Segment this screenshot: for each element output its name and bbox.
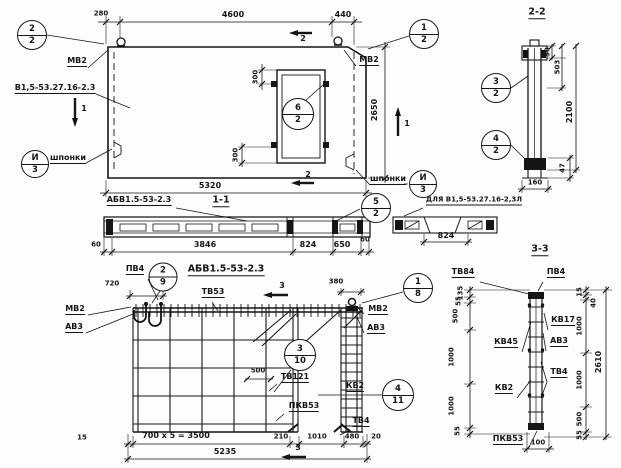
- drawing-linework: [0, 0, 621, 468]
- s33-dim-right-4: 1000: [577, 370, 584, 389]
- elev-dim-edge-left: 15: [77, 435, 87, 442]
- callout-bubble: И 3: [409, 170, 437, 198]
- loop-stems: [117, 45, 342, 46]
- s33-dim-bottom: 100: [531, 440, 546, 447]
- lifting-loop-icon: [117, 38, 125, 46]
- plan-dim-bottom: 5320: [199, 182, 221, 190]
- plan-dim-door-top: 300: [253, 70, 260, 85]
- s22-dim-upper: 503: [555, 60, 562, 75]
- variant-detail-view: [393, 208, 497, 246]
- dim-ticks: [103, 19, 388, 196]
- callout-sheet: 3: [22, 165, 48, 176]
- s33-dim-total: 2610: [595, 351, 603, 373]
- plan-dim-edge: 280: [94, 11, 109, 18]
- s33-dim-left-5: 1000: [449, 396, 456, 415]
- section-1-arrow-icon: [395, 107, 401, 116]
- elev-dim-jamb: 480: [345, 434, 360, 441]
- s33-label-kv45: КВ45: [494, 338, 518, 348]
- elev-dim-opening: 1010: [307, 434, 326, 441]
- callout-bubble: 6 2: [282, 98, 314, 130]
- s33-label-tv84: ТВ84: [452, 268, 475, 278]
- section-1-1-title: 1-1: [212, 195, 229, 207]
- elev-label-tv53: ТВ53: [202, 288, 225, 298]
- top-tab: [530, 40, 539, 46]
- section-3-3-title: 3-3: [531, 244, 548, 256]
- s11-dim-edge-left: 60: [91, 242, 101, 249]
- plan-section2-mark-bottom: 2: [305, 171, 311, 179]
- callout-number: 4: [383, 384, 413, 396]
- callout-sheet: 3: [410, 185, 436, 196]
- core-slots: [120, 224, 355, 231]
- section-2-arrow-icon: [291, 180, 300, 186]
- callout-number: 1: [404, 277, 432, 289]
- section-2-2-title: 2-2: [528, 7, 545, 19]
- s11-mesh-mark: АБВ1.5-53-2.3: [107, 196, 172, 206]
- callout-number: 3: [285, 344, 315, 356]
- plan-leader-lines: [47, 35, 409, 185]
- callout-number: 2: [18, 24, 46, 36]
- elev-dim-gap: 210: [274, 434, 289, 441]
- s33-label-pv4: ПВ4: [547, 268, 565, 278]
- s33-dim-right-3: 1000: [577, 316, 584, 335]
- elev-dim-jamb-top: 380: [329, 279, 344, 286]
- plan-panel-mark: В1,5-53.27.16-2.3: [15, 84, 96, 94]
- callout-number: 4: [482, 134, 510, 146]
- elev-dim-inner: 500: [251, 368, 266, 375]
- callout-number: 3: [482, 77, 510, 89]
- plan-section1-mark-right: 1: [404, 120, 410, 128]
- s33-label-pkv53: ПКВ53: [493, 435, 523, 445]
- s11-dim-opening: 824: [300, 241, 317, 249]
- callout-bubble: 4 11: [382, 379, 414, 411]
- s33-dim-right-1: 15: [577, 287, 584, 297]
- plan-label-keys-left: шпонки: [50, 154, 86, 164]
- section-2-arrow-icon: [289, 30, 298, 36]
- leaders: [511, 76, 528, 160]
- callout-sheet: 9: [150, 278, 177, 289]
- plan-label-mv2-left: МВ2: [67, 57, 87, 67]
- callout-number: 2: [150, 266, 177, 278]
- s11-dim-body: 3846: [194, 241, 216, 249]
- plan-section1-mark-left: 1: [81, 105, 87, 113]
- callout-sheet: 8: [404, 289, 432, 300]
- toe-lines: [522, 170, 548, 178]
- callout-bubble: 3 2: [481, 73, 511, 103]
- elev-label-mv2-left: МВ2: [65, 305, 85, 315]
- elev-label-pkv53: ПКВ53: [289, 402, 319, 412]
- elevation-title: АБВ1.5-53-2.3: [188, 264, 265, 276]
- callout-sheet: 2: [283, 115, 313, 126]
- detail-dim: 824: [438, 232, 455, 240]
- elev-label-av3-right: АВ3: [367, 324, 385, 334]
- elev-dim-field: 700 x 5 = 3500: [142, 432, 210, 440]
- plan-dim-top-right: 440: [335, 11, 352, 19]
- s33-dim-left-6: 55: [455, 426, 462, 436]
- s22-dim-toe: 47: [560, 163, 567, 173]
- section-1-arrow-icon: [72, 118, 78, 127]
- elev-label-mv2-right: МВ2: [368, 305, 388, 315]
- callout-sheet: 2: [482, 89, 510, 100]
- elev-section3-mark-top: 3: [279, 282, 285, 290]
- callout-bubble: 2 9: [149, 263, 178, 292]
- end-fills: [106, 219, 363, 235]
- callout-number: И: [22, 153, 48, 165]
- plan-label-mv2-right: МВ2: [359, 56, 379, 66]
- callout-bubble: 2 2: [17, 20, 47, 50]
- field-horizontal-bars: [133, 340, 293, 424]
- s33-label-kv17: КВ17: [551, 316, 575, 326]
- callout-bubble: 3 10: [284, 339, 316, 371]
- elev-label-kv2: КВ2: [346, 382, 364, 392]
- leaders: [404, 208, 423, 216]
- plan-dim-height: 2650: [371, 99, 379, 121]
- plan-dim-door-bottom: 300: [233, 148, 240, 163]
- callout-bubble: 1 2: [409, 19, 439, 49]
- detail-label: ДЛЯ В1,5-53.27.16-2,3Л: [426, 197, 522, 206]
- plan-dimension-lines: [98, 16, 390, 197]
- elev-label-av3-left: АВ3: [65, 323, 83, 333]
- engineering-drawing-sheet: 280 4600 440 МВ2 В1,5-53.27.16-2.3 МВ2 2…: [0, 0, 621, 468]
- slab-outline: [104, 217, 370, 237]
- elev-dim-edge-right: 20: [371, 434, 381, 441]
- elev-label-tv121: ТВ121: [281, 373, 309, 383]
- s22-dim-top: 50: [545, 47, 552, 57]
- s11-dim-right: 650: [334, 241, 351, 249]
- elev-dim-total: 5235: [214, 448, 236, 456]
- callout-bubble: 4 2: [481, 130, 511, 160]
- bar-dot: [144, 302, 148, 306]
- joint-lines: [287, 217, 362, 237]
- extension-lines: [104, 238, 369, 256]
- callout-sheet: 2: [410, 35, 438, 46]
- s33-label-tv4: ТВ4: [550, 368, 567, 378]
- s33-label-av3: АВ3: [550, 337, 568, 347]
- s33-dim-left-3: 500: [453, 309, 460, 324]
- s11-dim-edge-right: 60: [360, 237, 370, 244]
- bar-dot: [159, 302, 163, 306]
- s33-label-kv2: КВ2: [495, 384, 513, 394]
- callout-number: 1: [410, 23, 438, 35]
- plan-dim-top: 4600: [222, 11, 244, 19]
- s33-dim-left-2: 55: [456, 296, 463, 306]
- plan-label-keys-right: шпонки: [370, 175, 406, 185]
- s33-dim-right-6: 55: [577, 430, 584, 440]
- callout-bubble: 5 2: [361, 193, 391, 223]
- elev-section3-mark-bottom: 3: [295, 444, 301, 452]
- callout-sheet: 2: [18, 36, 46, 47]
- callout-sheet: 2: [482, 146, 510, 157]
- elev-label-tv4: ТВ4: [352, 417, 369, 427]
- elev-label-pv4: ПВ4: [126, 265, 144, 275]
- lifting-loop-icon: [334, 37, 342, 45]
- callout-number: 5: [362, 197, 390, 209]
- callout-sheet: 11: [383, 396, 413, 407]
- s22-dim-width: 160: [528, 180, 543, 187]
- s22-dim-height: 2100: [566, 101, 574, 123]
- callout-sheet: 10: [285, 356, 315, 367]
- leaders: [176, 208, 360, 221]
- jamb-rungs: [341, 318, 362, 426]
- extension-lines: [106, 16, 390, 197]
- s33-dim-left-4: 1000: [449, 347, 456, 366]
- s33-dim-right-2: 40: [591, 298, 598, 308]
- plan-section2-mark-top: 2: [300, 35, 306, 43]
- callout-number: И: [410, 173, 436, 185]
- leaders: [47, 35, 409, 185]
- callout-bubble: И 3: [21, 150, 49, 178]
- corner-loop-icon: [349, 299, 356, 306]
- elev-dim-hook: 720: [105, 281, 120, 288]
- callout-bubble: 1 8: [403, 273, 433, 303]
- callout-sheet: 2: [362, 209, 390, 220]
- field-vertical-bars: [133, 308, 298, 432]
- callout-number: 6: [283, 103, 313, 115]
- section-3-arrow-icon: [263, 292, 272, 298]
- s33-dim-right-5: 500: [577, 412, 584, 427]
